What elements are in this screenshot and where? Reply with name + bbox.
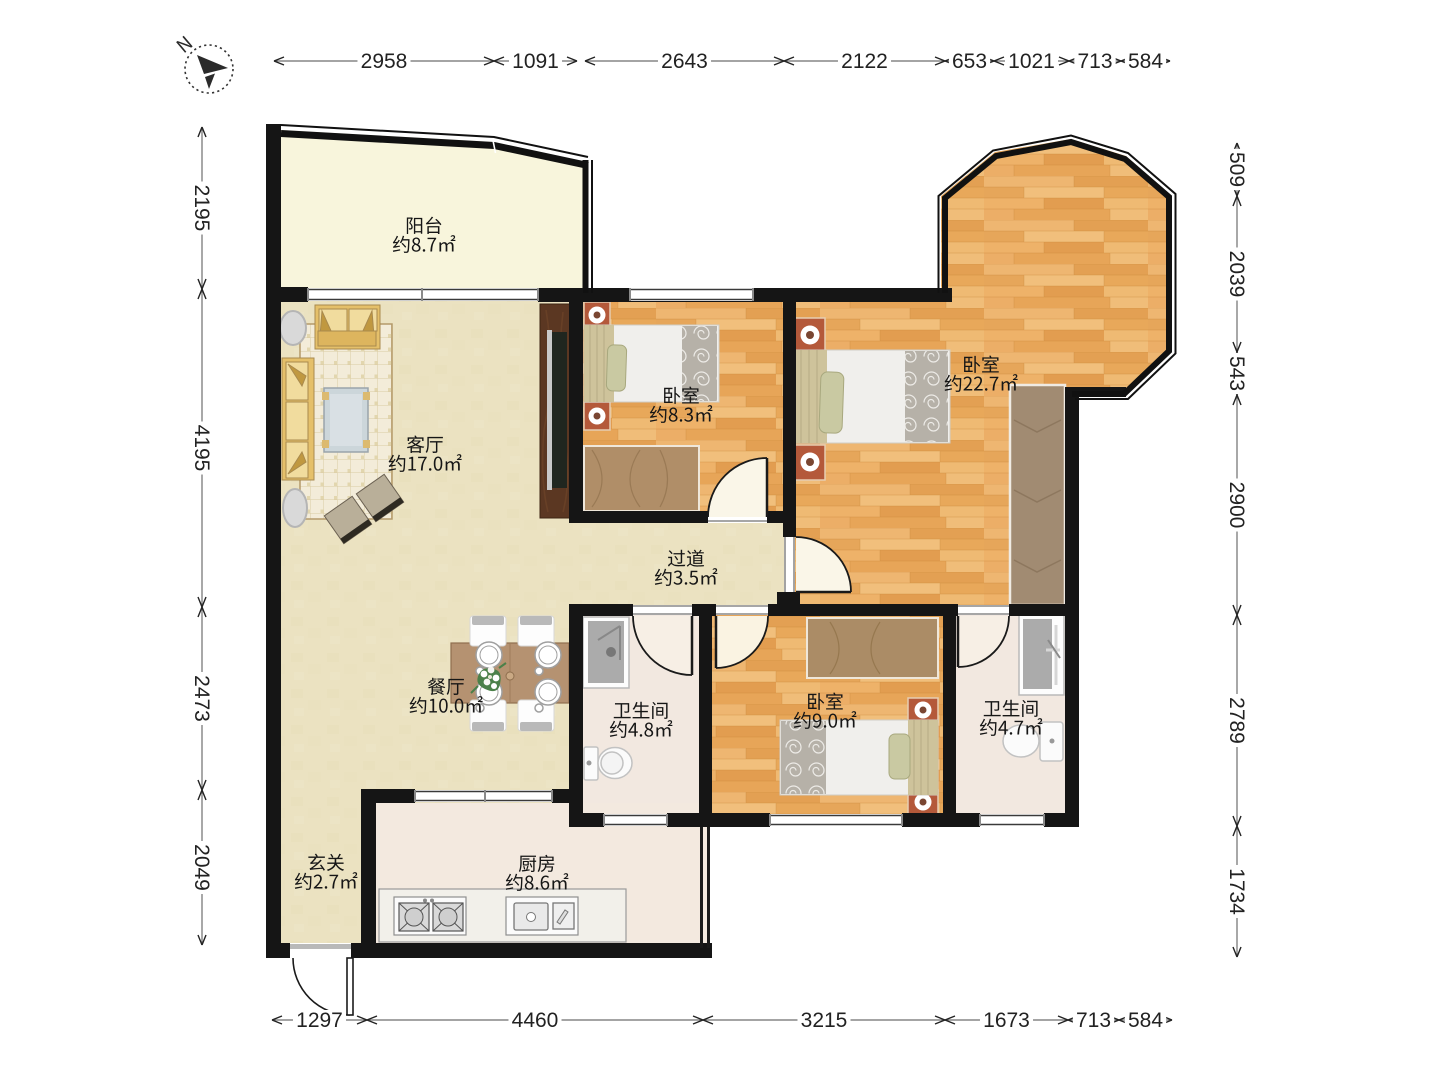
svg-text:1734: 1734 (1225, 868, 1248, 915)
svg-text:713: 713 (1076, 1009, 1111, 1032)
svg-text:584: 584 (1128, 50, 1163, 73)
svg-text:1297: 1297 (296, 1009, 343, 1032)
svg-text:543: 543 (1225, 356, 1248, 391)
svg-text:509: 509 (1225, 152, 1248, 187)
svg-text:2473: 2473 (190, 675, 213, 722)
svg-text:713: 713 (1077, 50, 1112, 73)
svg-text:4460: 4460 (512, 1009, 559, 1032)
svg-text:3215: 3215 (801, 1009, 848, 1032)
svg-text:4195: 4195 (190, 425, 213, 472)
svg-text:2122: 2122 (841, 50, 888, 73)
svg-text:2049: 2049 (190, 844, 213, 891)
svg-text:1021: 1021 (1008, 50, 1055, 73)
svg-text:584: 584 (1128, 1009, 1163, 1032)
svg-text:2195: 2195 (190, 185, 213, 232)
svg-text:2789: 2789 (1225, 697, 1248, 744)
svg-text:2900: 2900 (1225, 482, 1248, 529)
svg-text:1091: 1091 (512, 50, 559, 73)
svg-text:2958: 2958 (361, 50, 408, 73)
svg-text:2039: 2039 (1225, 251, 1248, 298)
svg-text:1673: 1673 (983, 1009, 1030, 1032)
svg-text:653: 653 (952, 50, 987, 73)
svg-text:2643: 2643 (661, 50, 708, 73)
